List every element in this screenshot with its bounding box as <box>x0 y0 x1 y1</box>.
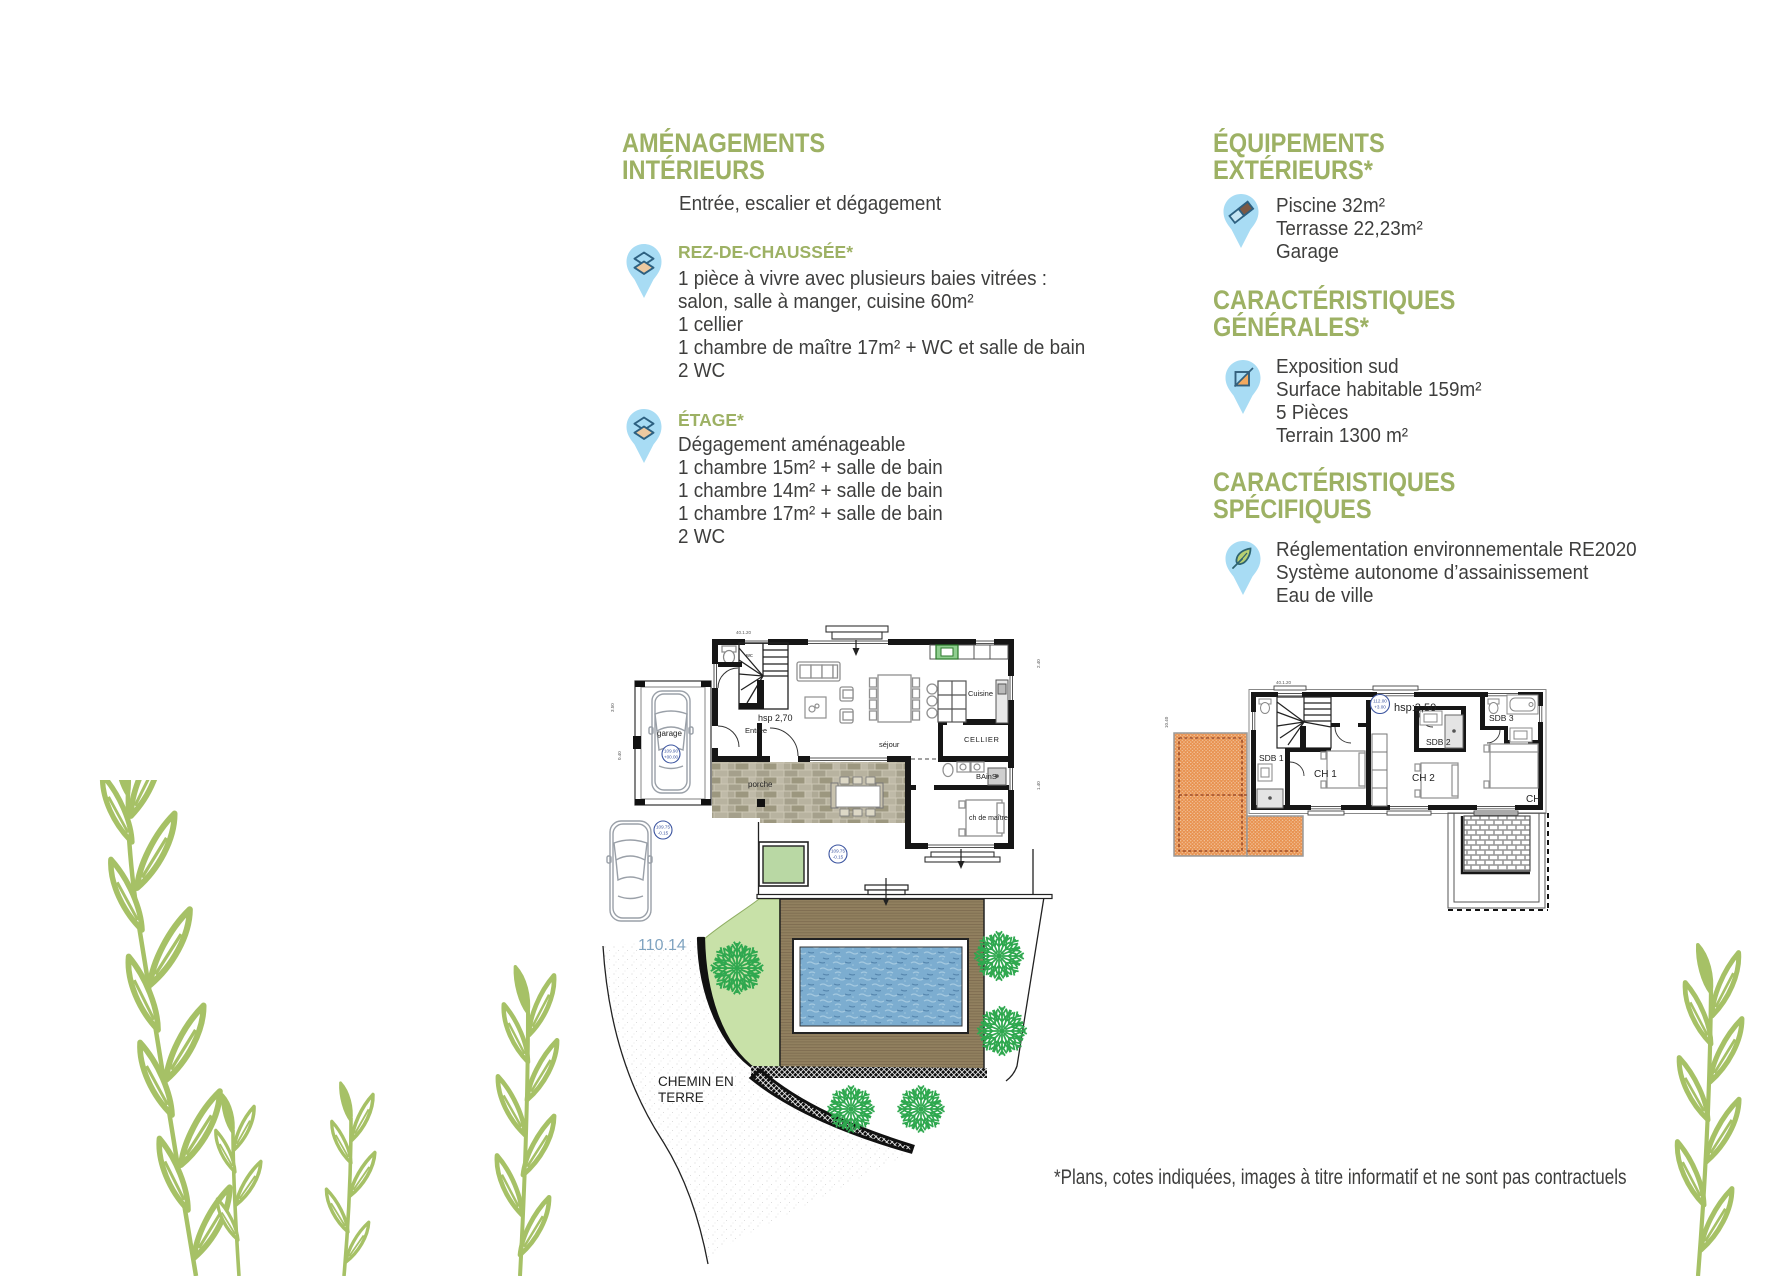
svg-text:109.90: 109.90 <box>664 749 678 754</box>
svg-text:112.00: 112.00 <box>1373 699 1387 704</box>
svg-text:+00.00: +00.00 <box>664 755 679 760</box>
svg-text:10.40: 10.40 <box>1164 716 1169 728</box>
svg-text:SDB 1: SDB 1 <box>1259 753 1284 763</box>
svg-text:3.50: 3.50 <box>610 703 615 712</box>
svg-text:CH 1: CH 1 <box>1314 769 1337 780</box>
svg-text:SDB 2: SDB 2 <box>1426 737 1451 747</box>
svg-text:Entrée: Entrée <box>745 726 767 735</box>
svg-text:0.40: 0.40 <box>617 751 622 760</box>
svg-text:CELLIER: CELLIER <box>964 735 999 744</box>
svg-text:séjour: séjour <box>879 740 900 749</box>
svg-text:Cuisine: Cuisine <box>968 689 993 698</box>
svg-text:40.1.20: 40.1.20 <box>736 630 752 635</box>
svg-text:hsp 2,70: hsp 2,70 <box>758 713 793 723</box>
svg-text:2.40: 2.40 <box>1036 659 1041 668</box>
svg-text:40.1.20: 40.1.20 <box>1276 680 1292 685</box>
svg-text:wc: wc <box>745 653 753 659</box>
svg-text:garage: garage <box>657 729 682 738</box>
svg-text:hsp:2,50: hsp:2,50 <box>1394 702 1436 714</box>
svg-text:SDB 3: SDB 3 <box>1489 713 1514 723</box>
svg-text:+3.00: +3.00 <box>1374 705 1386 710</box>
